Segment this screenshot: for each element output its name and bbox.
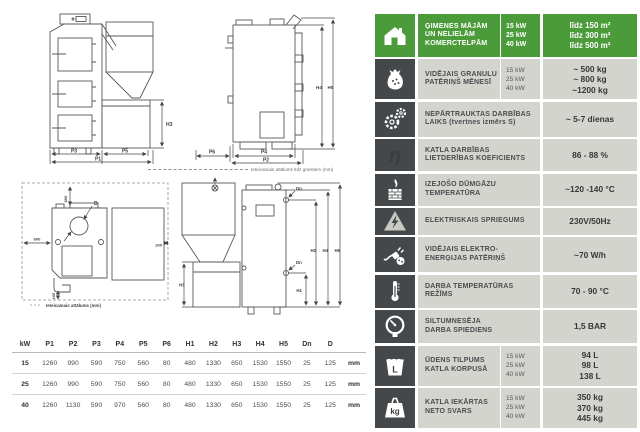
spec-label-line: ŪDENS TILPUMS <box>425 357 500 366</box>
dim-label-h4: H4 <box>316 85 322 90</box>
weight-kg-icon: kg <box>375 388 415 428</box>
spec-label-line: ĢIMENES MĀJĀM <box>425 23 500 32</box>
table-cell: 1260 <box>38 374 61 395</box>
spec-value: 138 L <box>579 371 600 381</box>
col-header: P1 <box>38 336 61 353</box>
table-cell: 125 <box>319 353 342 374</box>
table-cell: 1260 <box>38 395 61 415</box>
table-cell: 1530 <box>248 374 271 395</box>
spec-row-application: ĢIMENES MĀJĀM UN NELIELĀM KOMERCTELPĀM 1… <box>375 14 637 57</box>
spec-label-line: LIETDERĪBAS KOEFICIENTS <box>425 155 540 164</box>
ceiling-distance-note: Ieteicamais attālums līdz griestiem (mm) <box>148 167 368 172</box>
dim-label-h4: H4 <box>323 248 329 253</box>
table-cell: 590 <box>85 395 108 415</box>
table-cell: 750 <box>108 353 131 374</box>
table-cell: 80 <box>155 395 178 415</box>
boiler-spec-sheet: P3 P5 P1 H3 <box>0 0 640 432</box>
spec-label-line: SILTUMNESĒJA <box>425 318 540 327</box>
dim-label-h3: H3 <box>166 122 173 128</box>
table-cell: 650 <box>225 374 248 395</box>
dim-label-h3: H3 <box>179 283 185 288</box>
table-cell: 80 <box>155 353 178 374</box>
spec-row-working-pressure: SILTUMNESĒJA DARBA SPIEDIENS 1,5 BAR <box>375 310 637 343</box>
spec-kw: 40 kW <box>506 84 540 93</box>
col-header: H4 <box>248 336 271 353</box>
spec-label-line: TEMPERATŪRA <box>425 190 540 199</box>
spec-row-voltage: ELEKTRISKAIS SPRIEGUMS 230V/50Hz <box>375 208 637 235</box>
table-row-kw: 40 <box>12 395 38 415</box>
spec-label-line: IZEJOŠO DŪMGĀZU <box>425 181 540 190</box>
table-cell-unit: mm <box>342 353 366 374</box>
side-view-drawing: H4 H5 P6 P4 P2 <box>192 0 342 168</box>
table-cell: 480 <box>178 395 201 415</box>
spec-label-line: NETO SVARS <box>425 408 500 417</box>
spec-table: ĢIMENES MĀJĀM UN NELIELĀM KOMERCTELPĀM 1… <box>375 14 637 424</box>
spec-kw: 15 kW <box>506 66 540 75</box>
spec-value: 94 L <box>582 350 599 360</box>
spec-kw: 15 kW <box>506 352 540 361</box>
top-view-legend: Ieteicamais attālums (mm) <box>46 303 101 308</box>
spec-kw: 25 kW <box>506 75 540 84</box>
gears-icon <box>375 102 415 137</box>
spec-value: 86 - 88 % <box>572 150 608 160</box>
spec-kw: 25 kW <box>506 31 540 40</box>
col-header: H2 <box>202 336 225 353</box>
spec-row-water-volume: L ŪDENS TILPUMS KATLA KORPUSĀ 15 kW 25 k… <box>375 346 637 386</box>
svg-text:η: η <box>389 145 401 167</box>
table-cell-unit: mm <box>342 374 366 395</box>
table-cell: 650 <box>225 353 248 374</box>
table-cell: 80 <box>155 374 178 395</box>
clearance-left: 600 <box>34 237 41 242</box>
eta-efficiency-icon: η <box>375 139 415 171</box>
dim-label-h1: H1 <box>296 288 302 293</box>
spec-label-line: KATLA IEKĀRTAS <box>425 399 500 408</box>
spec-value: ~1200 kg <box>572 85 608 95</box>
spec-label-line: REŽĪMS <box>425 291 540 300</box>
dim-label-d: D <box>94 201 98 207</box>
spec-label-line: LAIKS (tvertnes izmērs S) <box>425 119 540 128</box>
dashed-line <box>148 169 248 170</box>
dimensions-table: kW P1 P2 P3 P4 P5 P6 H1 H2 H3 H4 H5 Dn D… <box>12 336 366 415</box>
table-cell-unit: mm <box>342 395 366 415</box>
table-cell: 1530 <box>248 395 271 415</box>
spec-value: 70 - 90 °C <box>571 286 609 296</box>
pressure-gauge-icon <box>375 310 415 343</box>
spec-kw: 15 kW <box>506 22 540 31</box>
spec-value: 350 kg <box>577 392 603 402</box>
spec-row-operating-temperature: DARBA TEMPERATŪRAS REŽĪMS 70 - 90 °C <box>375 275 637 308</box>
spec-label-line: VIDĒJAIS ELEKTRO- <box>425 246 540 255</box>
table-cell: 1550 <box>272 374 295 395</box>
table-cell: 590 <box>85 353 108 374</box>
table-cell: 480 <box>178 353 201 374</box>
spec-value: 370 kg <box>577 403 603 413</box>
spec-value: ~ 5-7 dienas <box>566 114 614 124</box>
table-cell: 1260 <box>38 353 61 374</box>
col-header: H1 <box>178 336 201 353</box>
table-cell: 990 <box>61 353 84 374</box>
clearance-top: 600 <box>63 195 68 202</box>
spec-value: 98 L <box>582 360 599 370</box>
table-cell: 970 <box>108 395 131 415</box>
col-header: P6 <box>155 336 178 353</box>
front-view-drawing: P3 P5 P1 H3 <box>40 2 190 174</box>
table-cell: 590 <box>85 374 108 395</box>
ceiling-note-text: Ieteicamais attālums līdz griestiem (mm) <box>251 167 333 172</box>
table-cell: 25 <box>295 353 318 374</box>
table-cell: 560 <box>132 353 155 374</box>
col-header: D <box>319 336 342 353</box>
dim-label-p4: P4 <box>261 150 267 156</box>
dim-label-p3: P3 <box>71 149 77 155</box>
spec-value: ~ 500 kg <box>573 64 606 74</box>
col-header: H3 <box>225 336 248 353</box>
spec-label-line: ENERĢIJAS PATĒRIŅŠ <box>425 255 540 264</box>
table-row-kw: 15 <box>12 353 38 374</box>
table-cell: 1550 <box>272 395 295 415</box>
rear-view-drawing: H3 Dn Dn H1 H2 H4 H5 <box>178 176 353 328</box>
spec-row-net-weight: kg KATLA IEKĀRTAS NETO SVARS 15 kW 25 kW… <box>375 388 637 428</box>
spec-value: ~120 -140 °C <box>565 184 615 194</box>
table-cell: 750 <box>108 374 131 395</box>
col-header: P3 <box>85 336 108 353</box>
svg-text:kg: kg <box>390 407 399 416</box>
spec-label-line: KATLA DARBĪBAS <box>425 147 540 156</box>
col-header: P5 <box>132 336 155 353</box>
spec-value: 1,5 BAR <box>574 321 606 331</box>
col-header-unit <box>342 336 366 353</box>
chimney-icon <box>375 174 415 206</box>
spec-row-efficiency: η KATLA DARBĪBAS LIETDERĪBAS KOEFICIENTS… <box>375 139 637 171</box>
table-cell: 125 <box>319 395 342 415</box>
voltage-triangle-icon <box>375 208 415 235</box>
spec-kw: 25 kW <box>506 361 540 370</box>
table-cell: 1550 <box>272 353 295 374</box>
table-cell: 1130 <box>61 395 84 415</box>
spec-row-continuous-operation: NEPĀRTRAUKTAS DARBĪBAS LAIKS (tvertnes i… <box>375 102 637 137</box>
top-view-drawing: D 600 600 200 100 Ieteicamais attālums (… <box>12 178 182 310</box>
clearance-right: 200 <box>155 243 162 248</box>
spec-label-line: NEPĀRTRAUKTAS DARBĪBAS <box>425 111 540 120</box>
clearance-bottom: 100 <box>51 292 56 299</box>
spec-row-flue-gas-temperature: IZEJOŠO DŪMGĀZU TEMPERATŪRA ~120 -140 °C <box>375 174 637 206</box>
spec-label-line: DARBA TEMPERATŪRAS <box>425 283 540 292</box>
dim-label-p5: P5 <box>122 149 128 155</box>
table-cell: 480 <box>178 374 201 395</box>
pellet-bag-icon <box>375 59 415 99</box>
dim-label-h2: H2 <box>311 248 317 253</box>
spec-label-line: UN NELIELĀM <box>425 31 500 40</box>
table-cell: 560 <box>132 374 155 395</box>
dim-label-p1: P1 <box>95 157 101 163</box>
table-cell: 560 <box>132 395 155 415</box>
table-cell: 1330 <box>202 395 225 415</box>
spec-label-line: KOMERCTELPĀM <box>425 40 500 49</box>
power-plug-icon <box>375 237 415 272</box>
table-cell: 25 <box>295 374 318 395</box>
house-icon <box>375 14 415 57</box>
dim-label-h5: H5 <box>328 85 334 90</box>
table-cell: 1330 <box>202 353 225 374</box>
spec-value: 230V/50Hz <box>569 216 610 226</box>
spec-label-line: PATĒRIŅŠ MĒNESĪ <box>425 79 500 88</box>
svg-text:L: L <box>392 364 398 374</box>
col-header: H5 <box>272 336 295 353</box>
spec-value: ~70 W/h <box>574 250 606 260</box>
spec-value: ~ 800 kg <box>573 74 606 84</box>
spec-kw: 40 kW <box>506 370 540 379</box>
table-cell: 650 <box>225 395 248 415</box>
table-cell: 1530 <box>248 353 271 374</box>
dim-label-dn-bottom: Dn <box>296 260 302 265</box>
table-cell: 25 <box>295 395 318 415</box>
col-header: Dn <box>295 336 318 353</box>
dim-label-h5: H5 <box>335 248 341 253</box>
table-cell: 1330 <box>202 374 225 395</box>
dim-label-p2: P2 <box>263 158 269 164</box>
spec-row-power-consumption: VIDĒJAIS ELEKTRO- ENERĢIJAS PATĒRIŅŠ ~70… <box>375 237 637 272</box>
spec-value: 445 kg <box>577 413 603 423</box>
col-header: kW <box>12 336 38 353</box>
table-cell: 990 <box>61 374 84 395</box>
dim-label-dn-top: Dn <box>296 186 302 191</box>
dim-label-p6: P6 <box>209 150 215 156</box>
spec-value: līdz 150 m² <box>570 21 611 31</box>
spec-label-line: ELEKTRISKAIS SPRIEGUMS <box>425 217 540 226</box>
spec-kw: 25 kW <box>506 403 540 412</box>
col-header: P4 <box>108 336 131 353</box>
table-cell: 125 <box>319 374 342 395</box>
water-bucket-icon: L <box>375 346 415 386</box>
spec-kw: 40 kW <box>506 40 540 49</box>
table-row-kw: 25 <box>12 374 38 395</box>
spec-kw: 40 kW <box>506 412 540 421</box>
col-header: P2 <box>61 336 84 353</box>
spec-value: līdz 300 m² <box>570 31 611 41</box>
spec-label-line: KATLA KORPUSĀ <box>425 366 500 375</box>
spec-row-pellet-consumption: VIDĒJAIS GRANULU PATĒRIŅŠ MĒNESĪ 15 kW 2… <box>375 59 637 99</box>
spec-value: līdz 500 m² <box>570 41 611 51</box>
thermometer-icon <box>375 275 415 308</box>
spec-kw: 15 kW <box>506 394 540 403</box>
spec-label-line: DARBA SPIEDIENS <box>425 327 540 336</box>
